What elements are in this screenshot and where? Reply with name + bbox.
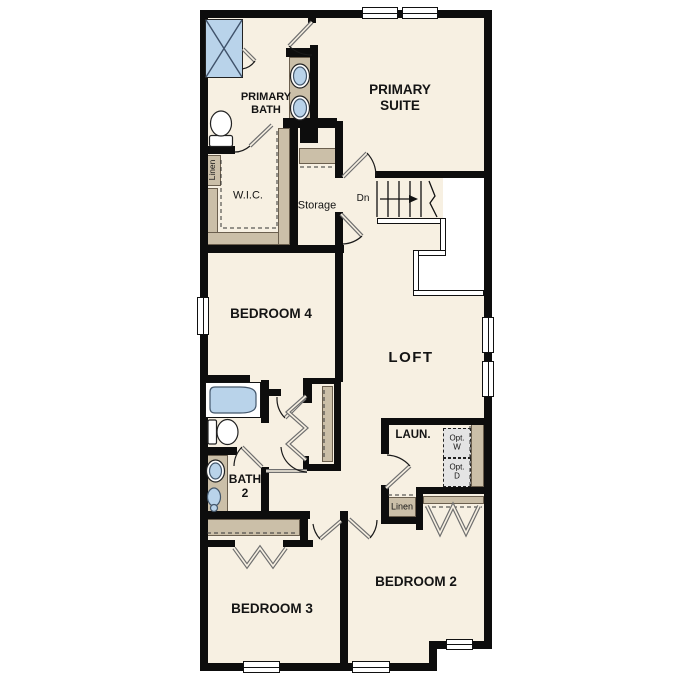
window bbox=[197, 297, 209, 335]
wall-suite-west bbox=[310, 45, 318, 125]
wall-closet-stub-a bbox=[303, 378, 309, 394]
wall-vanity-cap bbox=[286, 48, 312, 57]
room-label-storage: Storage bbox=[291, 200, 343, 213]
window-mullion bbox=[353, 667, 389, 668]
room-label-primary-suite: PRIMARY SUITE bbox=[358, 82, 442, 114]
wall-laundry-south bbox=[416, 487, 492, 494]
wall-bedroom3-closet-end bbox=[300, 511, 308, 547]
laundry-shelf bbox=[471, 424, 484, 487]
wic-shelf-right bbox=[278, 128, 290, 245]
wall-bath2-east-upper bbox=[261, 380, 269, 423]
stair-open-below-void bbox=[443, 178, 485, 290]
window-mullion bbox=[244, 667, 279, 668]
window bbox=[352, 661, 390, 673]
storage-shelf bbox=[299, 148, 336, 164]
wall-storage-east-lower bbox=[335, 212, 343, 248]
wall-vanity-backing bbox=[300, 126, 318, 143]
window-mullion bbox=[203, 298, 204, 334]
linen-label-wic: Linen bbox=[207, 155, 217, 185]
wall-wic-south bbox=[200, 245, 344, 253]
wall-stair-north bbox=[375, 171, 485, 178]
bedroom2-closet-shelf bbox=[423, 496, 484, 504]
wall-bedroom3-north-b bbox=[283, 540, 313, 547]
room-label-bedroom4: BEDROOM 4 bbox=[211, 306, 331, 322]
floorplan: PRIMARY BATH PRIMARY SUITE W.I.C. Storag… bbox=[0, 0, 687, 687]
stair-railing bbox=[377, 218, 446, 224]
window bbox=[482, 317, 494, 353]
window bbox=[482, 361, 494, 397]
window-mullion bbox=[403, 13, 437, 14]
wall-bath2-toilet-divider bbox=[200, 447, 237, 455]
wall-bedroom3-north-a bbox=[200, 540, 235, 547]
shower bbox=[205, 19, 243, 78]
optional-dryer-label: Opt. D bbox=[446, 463, 468, 482]
wall-exterior-bottom bbox=[200, 663, 437, 671]
wall-toilet-alcove bbox=[200, 146, 235, 154]
wall-bedroom4-east bbox=[335, 245, 343, 382]
room-label-wic: W.I.C. bbox=[218, 190, 278, 203]
bedroom3-closet-shelf bbox=[205, 519, 300, 536]
optional-washer-label: Opt. W bbox=[446, 434, 468, 453]
window-mullion bbox=[447, 644, 472, 645]
wall-suite-west-stub bbox=[308, 10, 316, 23]
room-label-bath2: BATH 2 bbox=[225, 472, 265, 500]
window-mullion bbox=[488, 318, 489, 352]
window bbox=[446, 639, 473, 650]
stair-railing bbox=[413, 290, 484, 296]
wall-bedroom2-bedroom3-divider bbox=[340, 511, 348, 671]
window-mullion bbox=[363, 13, 397, 14]
window-mullion bbox=[488, 362, 489, 396]
wall-laundry-north bbox=[381, 418, 485, 425]
stairs-down-label: Dn bbox=[350, 193, 376, 205]
room-label-loft: LOFT bbox=[376, 349, 446, 367]
room-label-primary-bath: PRIMARY BATH bbox=[231, 91, 301, 117]
wall-closet-stub-b bbox=[303, 456, 309, 471]
wall-wic-storage-divider bbox=[290, 128, 298, 248]
wall-exterior-top bbox=[200, 10, 492, 18]
hall-closet-shelf bbox=[322, 386, 333, 462]
wall-exterior-left bbox=[200, 10, 208, 671]
bathtub-platform bbox=[205, 382, 261, 418]
window bbox=[362, 7, 398, 19]
wall-closet-right bbox=[334, 378, 341, 470]
room-label-laundry: LAUN. bbox=[390, 429, 436, 443]
stair-open-below-void bbox=[417, 254, 446, 292]
window bbox=[243, 661, 280, 673]
window bbox=[402, 7, 438, 19]
wall-hall-south bbox=[200, 511, 310, 519]
wall-storage-east-upper bbox=[335, 121, 343, 178]
exterior-notch bbox=[437, 649, 507, 687]
wall-linen-bottom bbox=[381, 517, 423, 524]
room-label-bedroom3: BEDROOM 3 bbox=[212, 601, 332, 617]
linen-label-hall: Linen bbox=[387, 502, 417, 513]
room-label-bedroom2: BEDROOM 2 bbox=[356, 574, 476, 590]
